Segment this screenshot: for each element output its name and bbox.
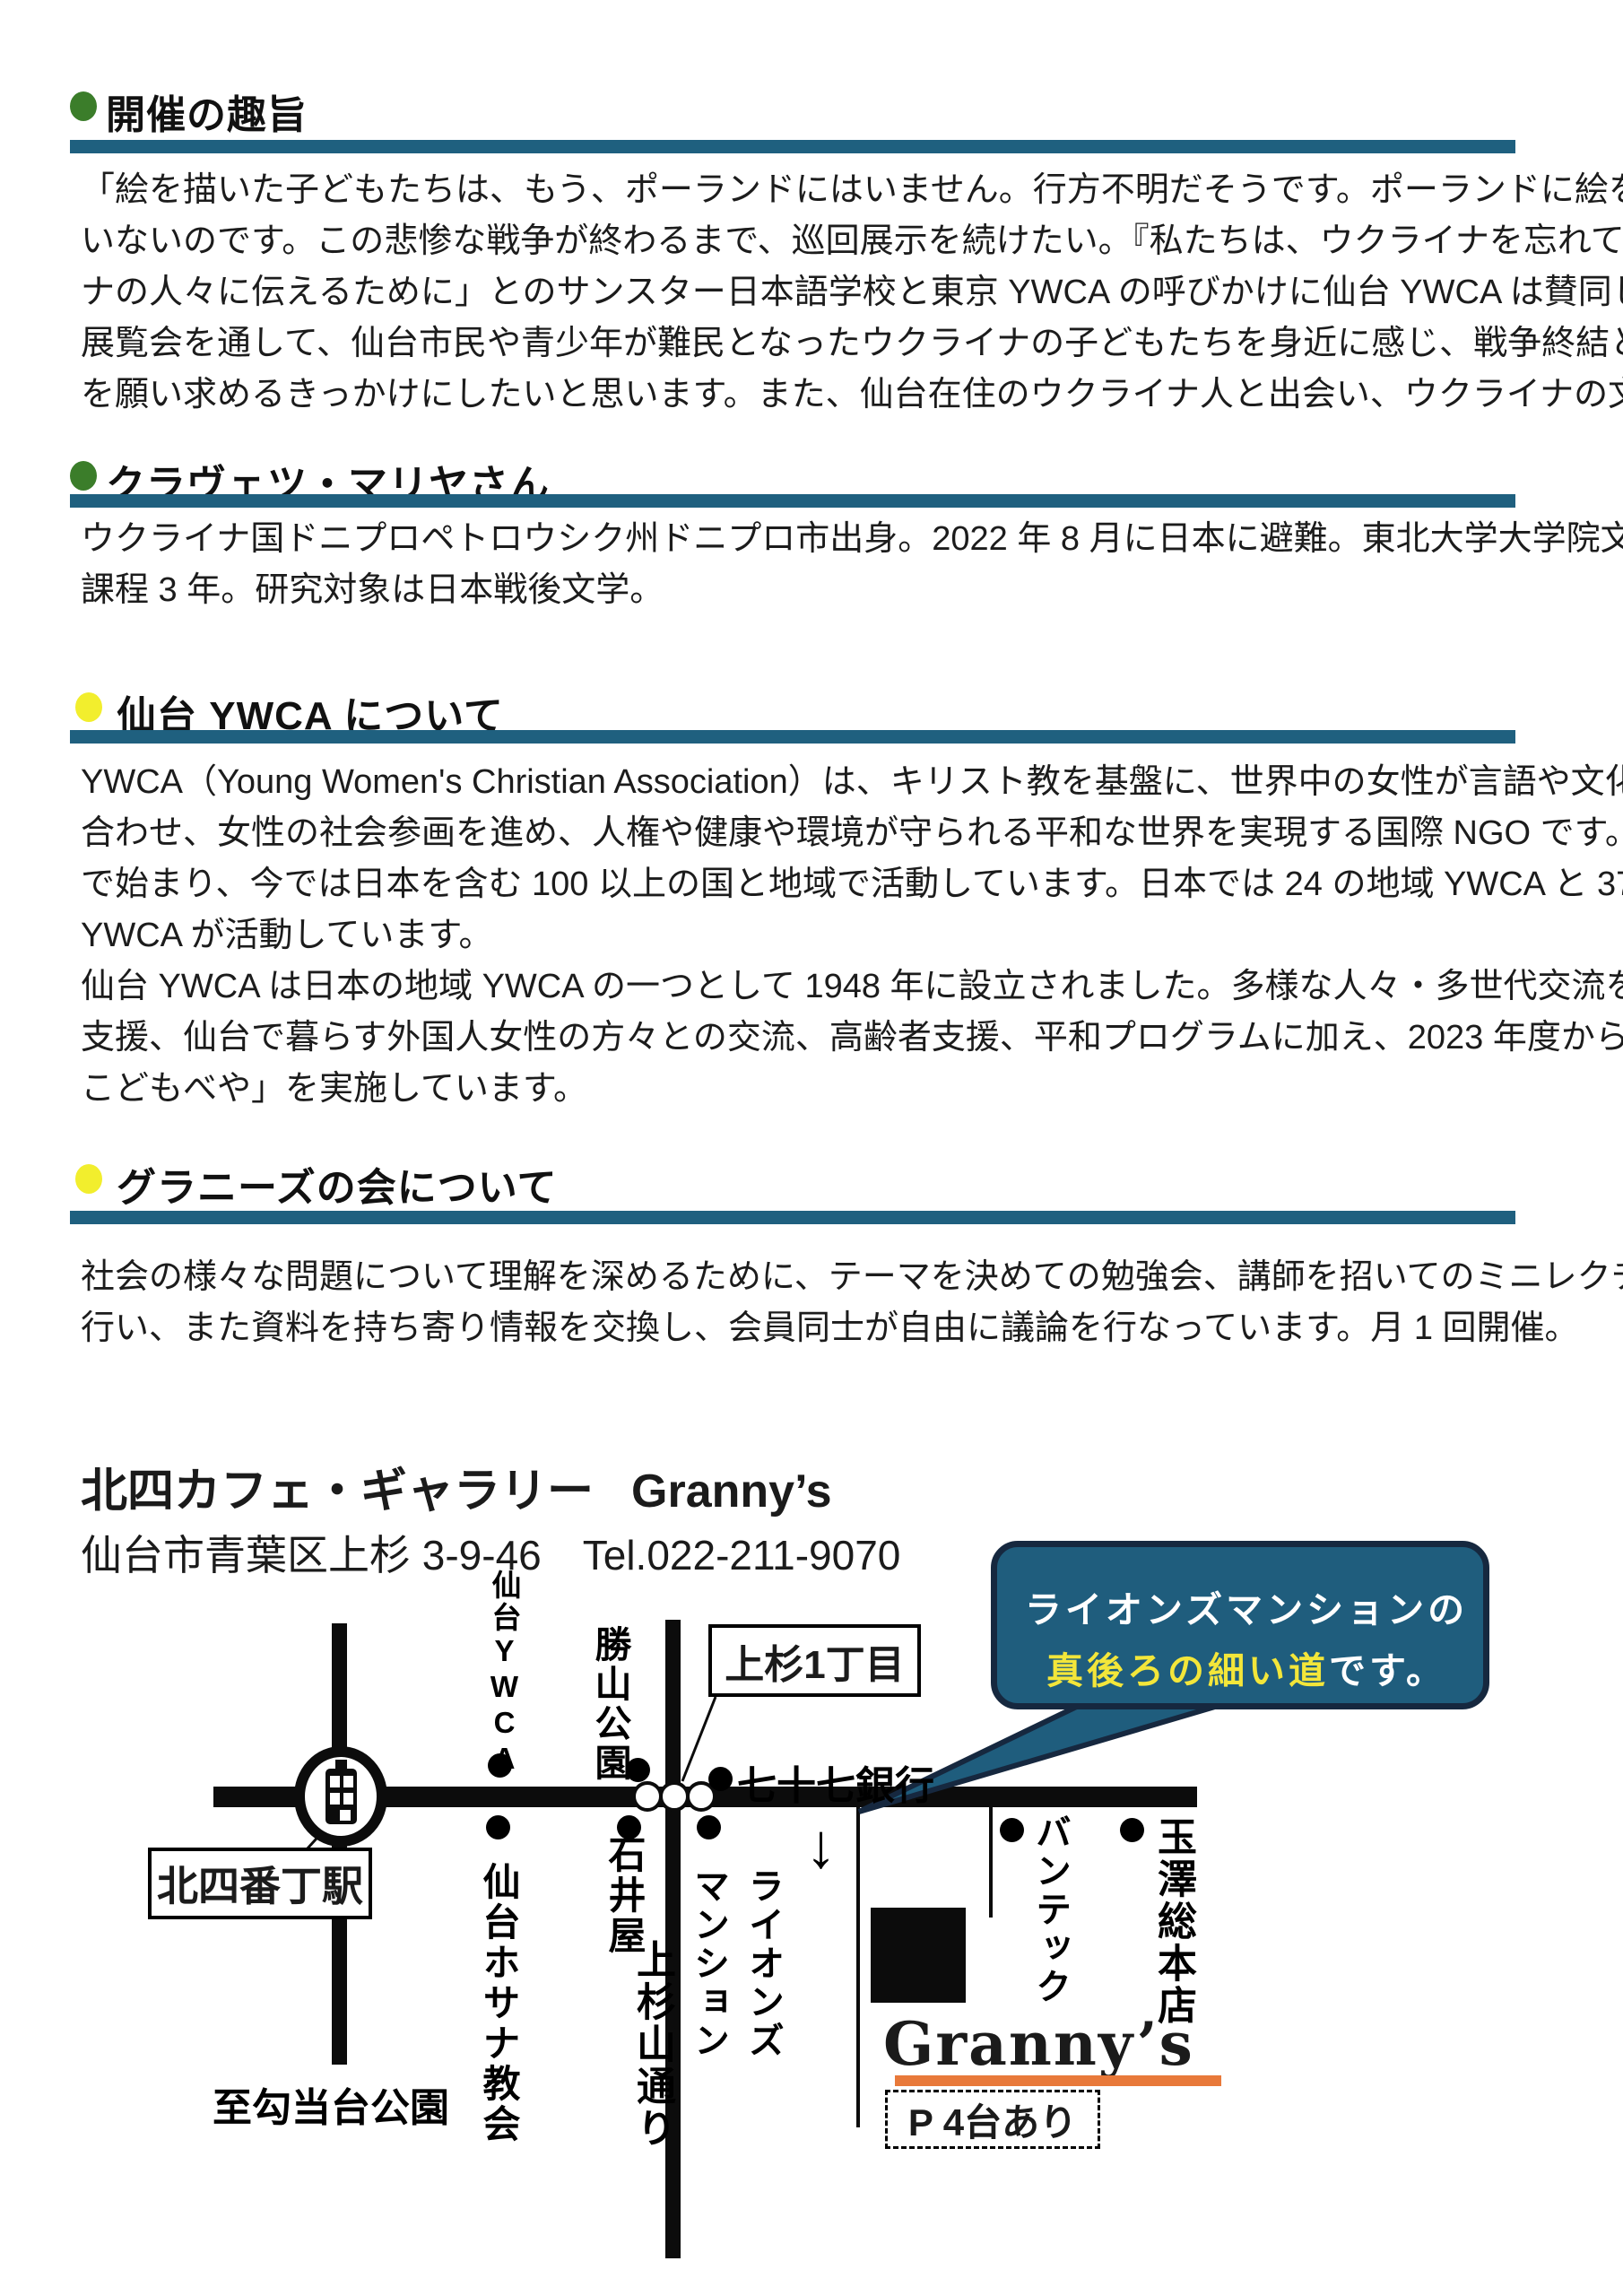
body-line: ウクライナ国ドニプロペトロウシク州ドニプロ市出身。2022 年 8 月に日本に避… [81,517,1587,561]
section-divider-bar [70,140,1515,153]
map-label-ishiiya: 石井屋 [597,1835,652,1956]
map-label-katsuyama-park: 勝山公園 [583,1625,637,1783]
signal-circle [634,1783,661,1810]
bubble-highlight: 真後ろの細い道 [1046,1650,1329,1692]
map-label-tamazawa: 玉澤総本店 [1144,1816,1202,2027]
body-line: 「絵を描いた子どもたちは、もう、ポーランドにはいません。行方不明だそうです。ポー… [81,169,1587,212]
venue-title: 北四カフェ・ギャラリーGranny’s [81,1453,832,1520]
section-title: グラニーズの会について [117,1155,557,1213]
map-label-bantec: バンテック [1024,1813,1076,2006]
body-line: 支援、仙台で暮らす外国人女性の方々との交流、高齢者支援、平和プログラムに加え、2… [81,1016,1587,1059]
body-line: YWCA（Young Women's Christian Association… [81,761,1587,804]
station-name-box: 北四番丁駅 [148,1848,372,1919]
body-line: いないのです。この悲惨な戦争が終わるまで、巡回展示を続けたい。『私たちは、ウクラ… [81,220,1587,263]
hosanna-dot-icon [486,1815,510,1839]
map-label-lions-col2: マンション [682,1867,734,2060]
tamazawa-dot-icon [1120,1818,1144,1842]
lions-dot-icon [697,1815,721,1839]
down-arrow-icon: ↓ [805,1810,837,1882]
speech-bubble: ライオンズマンションの 真後ろの細い道です。 [991,1541,1489,1709]
body-line: ナの人々に伝えるために」とのサンスター日本語学校と東京 YWCA の呼びかけに仙… [81,271,1587,314]
venue-name-en: Granny’s [631,1465,832,1518]
yellow-bullet-icon [75,1164,102,1194]
green-bullet-icon [70,461,97,491]
section-divider-bar [70,494,1515,508]
kamisugi-1chome-box: 上杉1丁目 [708,1624,921,1697]
leader-line-kamisugi [682,1697,716,1781]
map-label-to-kotodai-park: 至勾当台公園 [213,2075,449,2133]
venue-name-jp: 北四カフェ・ギャラリー [81,1465,594,1518]
signal-circle [661,1783,688,1810]
map-label-lions-col1: ライオンズ [737,1867,789,2060]
body-line: で始まり、今では日本を含む 100 以上の国と地域で活動しています。日本では 2… [81,863,1587,906]
body-line: 展覧会を通して、仙台市民や青少年が難民となったウクライナの子どもたちを身近に感じ… [81,322,1587,365]
access-map: ライオンズマンションの 真後ろの細い道です。 仙台YWCA 勝山公園 石井屋 仙… [117,1525,1327,2287]
section-divider-bar [70,730,1515,744]
yellow-bullet-icon [75,692,102,722]
bantec-dot-icon [1000,1818,1024,1842]
bubble-text-line1: ライオンズマンションの [997,1579,1496,1633]
grannys-building [871,1908,966,2003]
body-line: 社会の様々な問題について理解を深めるために、テーマを決めての勉強会、講師を招いて… [81,1256,1587,1299]
body-line: 行い、また資料を持ち寄り情報を交換し、会員同士が自由に議論を行なっています。月 … [81,1307,1587,1350]
section-divider-bar [70,1211,1515,1224]
map-label-kamisugiyama-street: 上杉山通り [623,1939,681,2150]
bubble-text-line2: 真後ろの細い道です。 [997,1640,1496,1694]
green-bullet-icon [70,91,97,121]
section-title: 開催の趣旨 [106,83,308,140]
parking-box: P 4台あり [885,2090,1100,2149]
grannys-underline [895,2075,1221,2086]
grannys-map-name: Granny’s [883,2009,1194,2079]
body-line: 課程 3 年。研究対象は日本戦後文学。 [81,569,1587,612]
map-label-hosanna-church: 仙台ホサナ教会 [472,1862,526,2144]
body-line: を願い求めるきっかけにしたいと思います。また、仙台在住のウクライナ人と出会い、ウ… [81,373,1587,416]
body-line: こどもべや」を実施しています。 [81,1067,1587,1110]
map-label-bank77: 七十七銀行 [737,1753,934,1811]
bank77-dot-icon [708,1767,733,1791]
map-label-sendai-ywca: 仙台YWCA [482,1570,525,1778]
body-line: YWCA が活動しています。 [81,914,1587,957]
body-line: 合わせ、女性の社会参画を進め、人権や健康や環境が守られる平和な世界を実現する国際… [81,812,1587,855]
body-line: 仙台 YWCA は日本の地域 YWCA の一つとして 1948 年に設立されまし… [81,965,1587,1008]
